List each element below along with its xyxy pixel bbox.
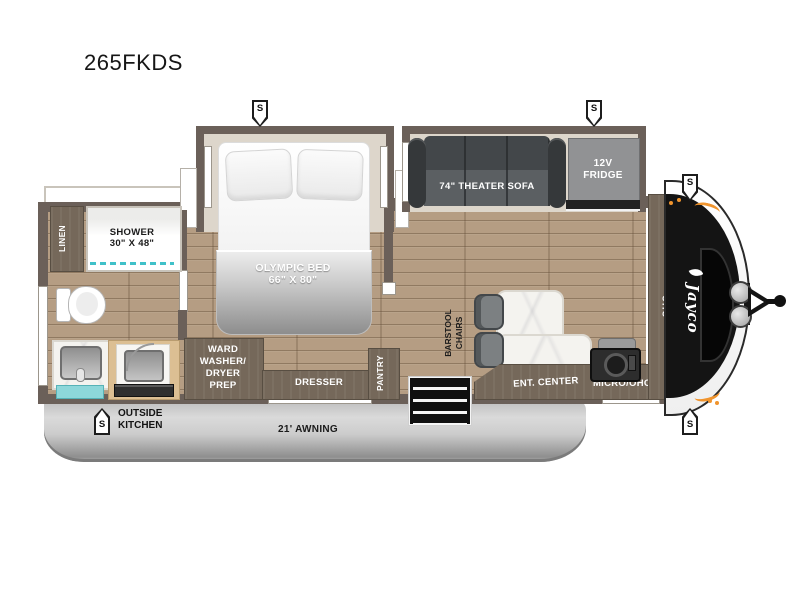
jayco-logo: Jayco	[684, 284, 702, 360]
bedroom-partition-wall	[384, 208, 393, 284]
bed-slide-window-left	[204, 146, 212, 208]
bedroom-door	[382, 282, 396, 295]
barstool-2	[474, 332, 504, 368]
accent-dot	[708, 399, 712, 403]
bed-label: OLYMPIC BED 66" X 80"	[218, 262, 368, 286]
fridge-label: 12V FRIDGE	[568, 158, 638, 181]
speaker-icon: S	[252, 100, 268, 127]
accent-dot	[669, 201, 673, 205]
dresser-label: DRESSER	[262, 378, 376, 389]
floorplan-canvas: 265FKDS 21' AWNING OUTSIDE KITCHEN OLYMP…	[0, 0, 800, 600]
bath-wall-lower	[178, 310, 187, 340]
ward-label: WARD WASHER/ DRYER PREP	[184, 344, 262, 392]
rear-window	[38, 286, 48, 386]
speaker-icon: S	[94, 408, 110, 435]
entry-steps	[408, 376, 472, 426]
outside-kitchen-label: OUTSIDE KITCHEN	[118, 408, 162, 432]
sofa-back	[424, 136, 550, 170]
awning-label: 21' AWNING	[248, 424, 368, 436]
linen-label: LINEN	[58, 214, 68, 264]
accent-dot	[715, 401, 719, 405]
speaker-icon: S	[682, 408, 698, 435]
pantry-label: PANTRY	[376, 352, 386, 394]
pillow-right	[296, 149, 364, 201]
bath-mat	[56, 385, 104, 399]
barstool-label: BARSTOOL CHAIRS	[443, 293, 469, 373]
stove-controls-icon	[628, 355, 636, 371]
pillow-left	[225, 148, 294, 201]
fridge-ledge	[566, 200, 640, 211]
sofa-armrest-right	[548, 138, 566, 208]
speaker-icon: S	[682, 174, 698, 201]
sofa-armrest-left	[408, 138, 426, 208]
shower-threshold	[90, 262, 174, 265]
entry-steps-treads	[410, 378, 470, 424]
speaker-icon: S	[586, 100, 602, 127]
floorplan-title: 265FKDS	[84, 50, 183, 76]
hitch-coupler-icon	[774, 295, 786, 307]
vanity-faucet-icon	[76, 368, 85, 382]
shower-label: SHOWER 30" X 48"	[86, 228, 178, 250]
toilet-bowl-inner	[76, 292, 98, 316]
stove-burner-icon	[604, 353, 628, 377]
sofa-label: 74" THEATER SOFA	[420, 182, 554, 193]
bed-slide-window-right	[380, 146, 388, 208]
barstool-1	[474, 294, 504, 330]
bath-door	[179, 270, 188, 312]
accent-dot	[677, 198, 681, 202]
